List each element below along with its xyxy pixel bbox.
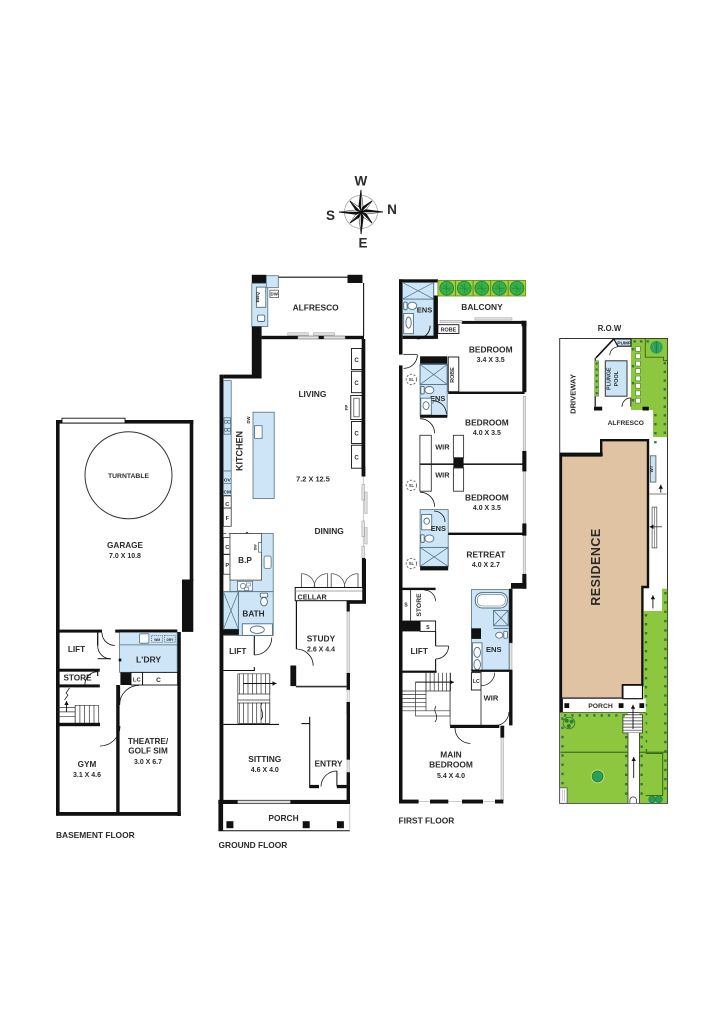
svg-text:SITTING: SITTING [248, 754, 281, 764]
svg-text:DW: DW [246, 416, 251, 423]
svg-text:C: C [354, 432, 359, 438]
svg-text:BBQ: BBQ [255, 292, 260, 303]
svg-text:4.0 X 3.5: 4.0 X 3.5 [473, 505, 501, 512]
svg-text:WIR: WIR [435, 443, 450, 452]
svg-text:ENS: ENS [431, 524, 446, 533]
svg-text:DRY: DRY [166, 638, 174, 642]
svg-text:PORCH: PORCH [588, 703, 613, 710]
svg-text:4.6 X 4.0: 4.6 X 4.0 [251, 767, 279, 774]
svg-text:GROUND FLOOR: GROUND FLOOR [219, 840, 288, 850]
svg-text:S: S [404, 603, 408, 609]
svg-text:SL: SL [409, 377, 415, 382]
svg-text:S: S [326, 208, 335, 223]
svg-text:CM: CM [223, 490, 231, 496]
svg-text:CELLAR: CELLAR [298, 592, 328, 601]
svg-text:DW: DW [253, 544, 257, 551]
svg-text:PORCH: PORCH [268, 813, 298, 823]
svg-text:GARAGE: GARAGE [107, 541, 143, 550]
svg-text:WIR: WIR [484, 694, 499, 703]
svg-text:RESIDENCE: RESIDENCE [589, 528, 603, 605]
svg-text:C: C [156, 677, 161, 684]
svg-text:7.2 X 12.5: 7.2 X 12.5 [296, 475, 330, 484]
svg-text:F: F [226, 516, 230, 522]
svg-text:ALFRESCO: ALFRESCO [608, 420, 644, 427]
svg-text:4.0 X 2.7: 4.0 X 2.7 [472, 562, 500, 569]
svg-text:STUDY: STUDY [307, 634, 336, 644]
svg-text:GYM: GYM [78, 760, 97, 769]
svg-text:ROBE: ROBE [450, 367, 456, 383]
svg-text:STORE: STORE [416, 593, 423, 617]
svg-text:KITCHEN: KITCHEN [235, 431, 245, 471]
svg-text:DINING: DINING [314, 526, 343, 536]
svg-text:LC: LC [133, 677, 142, 683]
svg-text:FIRST FLOOR: FIRST FLOOR [399, 816, 455, 826]
svg-text:GOLF SIM: GOLF SIM [128, 747, 168, 756]
svg-text:SL: SL [409, 561, 415, 566]
svg-text:2.6 X 4.4: 2.6 X 4.4 [307, 647, 335, 654]
svg-text:BEDROOM: BEDROOM [465, 418, 509, 428]
svg-text:LIFT: LIFT [229, 647, 246, 656]
svg-text:5.4 X 4.0: 5.4 X 4.0 [437, 773, 465, 780]
svg-text:7.0 X 10.8: 7.0 X 10.8 [109, 553, 141, 560]
svg-text:BATH: BATH [242, 610, 264, 619]
svg-text:OV: OV [224, 478, 232, 484]
svg-text:WIR: WIR [435, 471, 450, 480]
svg-text:S: S [426, 625, 430, 631]
svg-text:4.0 X 3.5: 4.0 X 3.5 [473, 430, 501, 437]
svg-text:C: C [354, 358, 359, 364]
svg-text:ROBE: ROBE [441, 328, 457, 334]
svg-text:BASEMENT FLOOR: BASEMENT FLOOR [56, 830, 135, 840]
svg-text:PLUNGE: PLUNGE [607, 367, 613, 390]
svg-text:RETREAT: RETREAT [466, 550, 506, 560]
svg-text:LIFT: LIFT [411, 647, 428, 656]
svg-text:BEDROOM: BEDROOM [429, 760, 473, 770]
svg-text:DW: DW [271, 292, 279, 297]
svg-text:SL: SL [409, 483, 415, 488]
svg-text:W: W [355, 174, 368, 189]
svg-text:BEDROOM: BEDROOM [469, 345, 513, 355]
svg-text:WM: WM [154, 638, 160, 642]
svg-text:C: C [354, 456, 359, 462]
svg-text:L'DRY: L'DRY [136, 654, 161, 664]
svg-text:ENS: ENS [486, 645, 502, 654]
svg-text:ENTRY: ENTRY [314, 759, 342, 769]
svg-text:E: E [358, 236, 367, 251]
svg-text:LC: LC [473, 679, 480, 685]
svg-text:TURNTABLE: TURNTABLE [108, 473, 149, 480]
svg-text:B.P: B.P [238, 556, 252, 565]
svg-text:C: C [225, 502, 229, 508]
svg-text:ENS: ENS [417, 306, 433, 315]
svg-text:3.4 X 3.5: 3.4 X 3.5 [477, 357, 505, 364]
svg-text:C: C [225, 545, 229, 551]
svg-text:ALFRESCO: ALFRESCO [293, 303, 340, 313]
svg-text:MAIN: MAIN [440, 750, 461, 760]
svg-text:POOL: POOL [614, 370, 620, 386]
svg-text:R.O.W: R.O.W [598, 324, 622, 333]
svg-text:P: P [225, 563, 229, 569]
svg-text:STORE: STORE [63, 674, 92, 683]
svg-text:3.0 X 6.7: 3.0 X 6.7 [134, 759, 162, 766]
svg-text:C: C [354, 381, 359, 387]
svg-text:BALCONY: BALCONY [461, 302, 503, 312]
svg-text:LIVING: LIVING [298, 389, 326, 399]
svg-text:DRIVEWAY: DRIVEWAY [568, 374, 577, 414]
svg-text:3.1 X 4.6: 3.1 X 4.6 [73, 772, 101, 779]
svg-text:WT: WT [649, 465, 654, 472]
svg-text:PUMP: PUMP [617, 341, 632, 347]
svg-text:THEATRE/: THEATRE/ [128, 737, 169, 746]
svg-text:FP: FP [344, 405, 349, 411]
svg-text:N: N [387, 202, 397, 217]
svg-text:LIFT: LIFT [68, 645, 85, 654]
svg-text:BEDROOM: BEDROOM [465, 493, 509, 503]
